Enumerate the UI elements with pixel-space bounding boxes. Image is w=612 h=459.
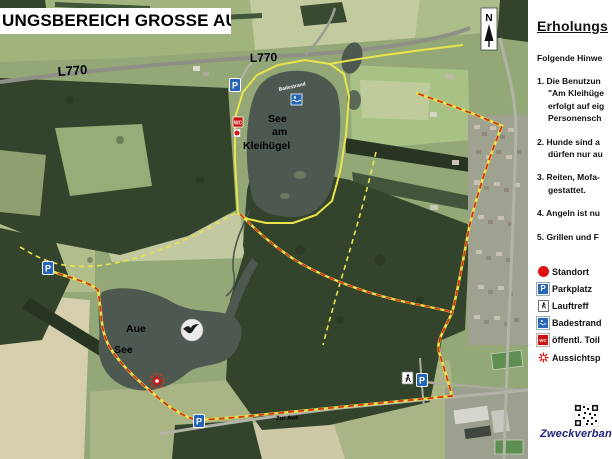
svg-text:WC: WC: [234, 121, 243, 127]
legend-row-wc: WC öffentl. Toil: [537, 332, 612, 349]
rule-item-4: 4. Angeln ist nu: [537, 207, 612, 219]
svg-text:P: P: [196, 417, 202, 427]
road-label-l770-west: L770: [57, 62, 88, 79]
badestrand-icon: [537, 317, 549, 329]
lake-kleihuegel-label-1: See: [268, 113, 287, 125]
aerial-map: L770 L770 See am Kleihügel Aue See Zur A…: [0, 0, 528, 459]
screenshot: L770 L770 See am Kleihügel Aue See Zur A…: [0, 0, 612, 459]
lake-aue-label-1: Aue: [126, 323, 146, 335]
lake-aue-label-2: See: [114, 344, 133, 356]
svg-text:P: P: [232, 81, 238, 91]
qr-code: [574, 404, 599, 427]
legend-row-standort: Standort: [537, 263, 612, 280]
parkplatz-icon: P: [537, 283, 549, 295]
rule-item-2: 2. Hunde sind a dürfen nur au: [537, 136, 612, 161]
rule-item-5: 5. Grillen und F: [537, 231, 612, 243]
legend-row-lauftreff: Lauftreff: [537, 297, 612, 314]
svg-text:P: P: [45, 264, 51, 274]
aerial-map-graphic: L770 L770 See am Kleihügel Aue See Zur A…: [0, 0, 528, 459]
panel-heading: Erholungs: [537, 18, 612, 34]
wc-marker: WC: [233, 117, 243, 127]
rule-item-1: 1. Die Benutzun "Am Kleihüge erfolgt auf…: [537, 75, 612, 125]
wc-icon: WC: [537, 334, 549, 346]
legend: Standort P Parkplatz Lauftreff Badestran…: [537, 263, 612, 366]
parkplatz-marker-west: P: [43, 262, 54, 275]
legend-row-parkplatz: P Parkplatz: [537, 280, 612, 297]
rules-list: 1. Die Benutzun "Am Kleihüge erfolgt auf…: [537, 75, 612, 243]
aussichtspunkt-icon: [537, 352, 549, 364]
parkplatz-marker-north: P: [230, 79, 241, 92]
legend-row-aussichtspunkt: Aussichtsp: [537, 349, 612, 366]
legend-row-badestrand: Badestrand: [537, 315, 612, 332]
lauftreff-marker: [402, 372, 413, 384]
aussichtspunkt-marker: [152, 376, 162, 386]
rule-item-3: 3. Reiten, Mofa- gestattet.: [537, 171, 612, 196]
badestrand-marker: [291, 94, 302, 105]
map-title-band: UNGSBEREICH GROSSE AUE: [0, 8, 231, 34]
info-panel: Erholungs Folgende Hinwe 1. Die Benutzun…: [528, 0, 612, 459]
bird-icon: [181, 319, 203, 341]
road-label-l770-mid: L770: [250, 50, 278, 65]
parkplatz-marker-south: P: [194, 415, 205, 428]
map-title: UNGSBEREICH GROSSE AUE: [0, 11, 231, 31]
north-arrow: N: [481, 8, 497, 50]
panel-intro: Folgende Hinwe: [537, 53, 612, 63]
lauftreff-icon: [537, 300, 549, 312]
lake-kleihuegel-label-2: am: [272, 126, 287, 138]
svg-text:P: P: [419, 376, 425, 386]
lake-kleihuegel-label-3: Kleihügel: [243, 140, 290, 152]
svg-text:N: N: [485, 13, 492, 24]
standort-marker: [234, 129, 241, 137]
street-label-zur-aue: Zur Aue: [276, 415, 299, 422]
panel-footer: Zweckverban: [540, 428, 612, 440]
parkplatz-marker-east: P: [417, 374, 428, 387]
standort-icon: [537, 266, 549, 278]
